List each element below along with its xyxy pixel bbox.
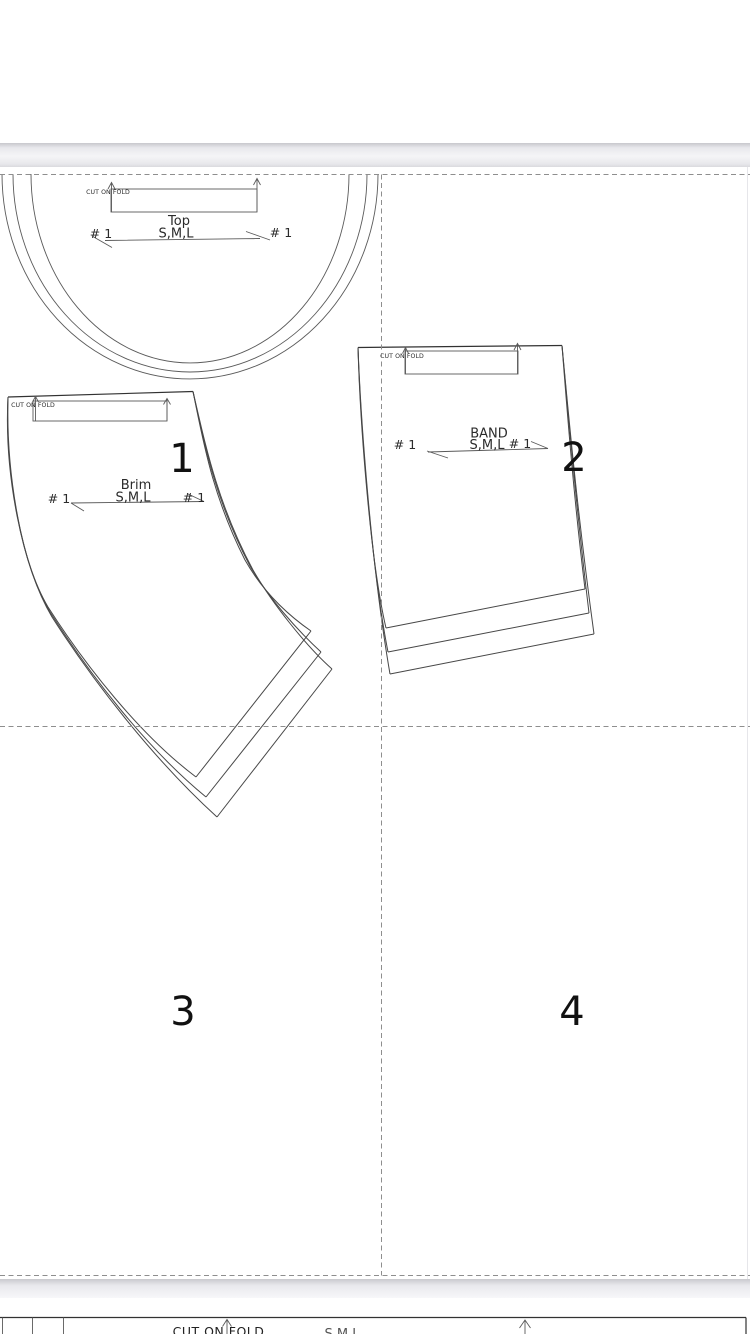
next-piece-fold-label: CUT ON FOLD [173,1324,265,1334]
brim-bottom-edge-s [196,631,311,777]
pdf-page-view[interactable]: CUT ON FOLD Top S,M,L # 1 # 1 [0,0,750,1334]
sewing-pattern-line-art: CUT ON FOLD Top S,M,L # 1 # 1 [0,0,750,1334]
top-piece-sizes: S,M,L [159,227,195,242]
brim-piece-sizes: S,M,L [116,491,152,506]
tile-number-3: 3 [170,989,195,1035]
band-notch-right: # 1 [509,436,531,451]
top-notch-left: # 1 [90,226,112,241]
brim-notch-left: # 1 [48,491,70,506]
brim-fold-arrow-right [164,399,171,422]
next-piece-grain-arrow [520,1320,531,1334]
tile-number-4: 4 [559,989,584,1035]
brim-right-edge-l [193,392,332,670]
top-piece-arc-outer [2,174,378,379]
band-bottom-edge-l [390,634,594,674]
tile-number-1: 1 [169,436,194,482]
band-piece-sizes: S,M,L [470,438,506,453]
band-bottom-edge-m [388,613,589,652]
brim-right-edge-m [193,392,321,653]
tile-boundaries [0,175,750,1276]
brim-right-edge-s [193,392,311,632]
brim-bottom-edge-m [206,652,321,797]
brim-left-edge-s [8,397,196,777]
brim-notch-right: # 1 [183,490,205,505]
top-piece-arc-middle [13,174,367,372]
next-piece-top-edge [0,1318,746,1334]
top-fold-arrow-left [108,183,115,213]
next-piece-left-lines [3,1318,64,1334]
top-notch-right: # 1 [270,225,292,240]
band-left-edge-m [358,348,388,653]
band-notch-left: # 1 [394,437,416,452]
next-piece-sizes-partial: S,M,L [325,1327,361,1334]
brim-bottom-edge-l [217,669,332,817]
tile-number-2: 2 [561,435,586,481]
top-fold-label: CUT ON FOLD [86,189,130,196]
band-fold-arrow-right [514,344,521,375]
band-fold-label: CUT ON FOLD [380,353,424,360]
top-piece: CUT ON FOLD Top S,M,L # 1 # 1 [2,174,378,379]
brim-fold-label: CUT ON FOLD [11,402,55,409]
top-fold-box [111,189,257,212]
band-piece: CUT ON FOLD BAND S,M,L # 1 # 1 [358,344,594,675]
next-page-piece: CUT ON FOLD S,M,L [0,1318,746,1334]
band-fold-arrow-left [403,348,409,375]
band-bottom-edge-s [386,589,585,628]
top-fold-arrow-right [254,179,261,213]
top-piece-arc-inner [31,174,349,363]
band-top-edge [358,346,562,348]
